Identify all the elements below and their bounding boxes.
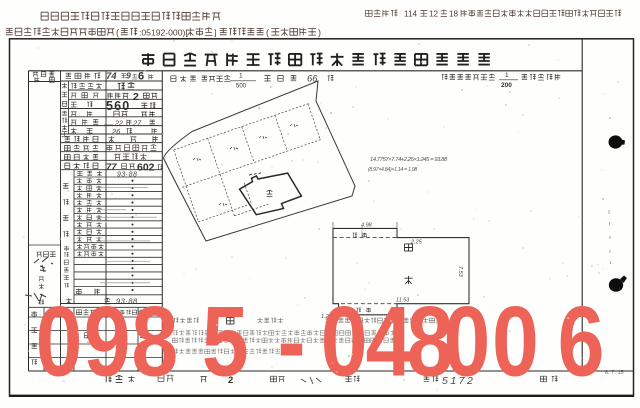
svg-text:602: 602 [137,162,155,174]
svg-text:2.25: 2.25 [410,240,423,246]
svg-text:): ) [318,28,321,38]
svg-text:74: 74 [106,71,117,82]
svg-text:(: ( [266,28,269,38]
svg-text:2: 2 [133,91,139,103]
svg-text:1: 1 [505,72,509,79]
svg-text:0985-048006: 0985-048006 [36,287,605,397]
svg-text:4.98: 4.98 [361,223,373,229]
svg-text::05192-000)[: :05192-000)[ [139,28,188,38]
svg-text:77: 77 [106,162,117,173]
svg-text:7.53: 7.53 [457,266,463,278]
svg-text:14.7757×7.74+2.25×1.245 = 93.8: 14.7757×7.74+2.25×1.245 = 93.88 [370,157,448,163]
svg-text:18: 18 [449,10,459,19]
svg-text:9: 9 [126,71,131,81]
svg-text:(: ( [116,28,119,38]
svg-text:1: 1 [239,73,243,80]
svg-text:]: ] [214,28,216,38]
svg-text:6. 7. 15: 6. 7. 15 [605,370,624,376]
svg-text:6: 6 [138,71,144,83]
svg-text:500: 500 [236,84,247,90]
svg-text:12: 12 [429,10,439,19]
svg-text:27: 27 [132,119,142,128]
svg-text:26: 26 [111,127,121,136]
svg-text:114: 114 [404,10,417,19]
svg-text:200: 200 [501,82,512,89]
svg-text:93·88: 93·88 [117,171,137,178]
